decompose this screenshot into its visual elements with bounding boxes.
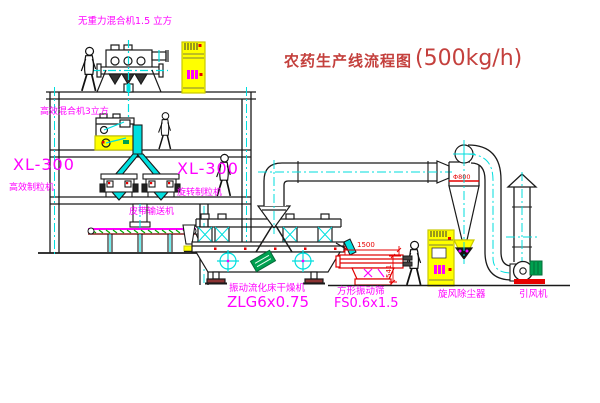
dryer-legs — [205, 272, 325, 284]
granulator-left — [100, 174, 138, 200]
label-granulator-left-name: 高效制粒机 — [9, 184, 54, 193]
spring-mounts — [198, 227, 332, 242]
worker-floor2 — [159, 113, 171, 149]
page-title: 农药生产线流程图 (500kg/h) — [284, 48, 522, 70]
label-screen-model: FS0.6x1.5 — [334, 297, 399, 310]
title-capacity: (500kg/h) — [415, 48, 522, 70]
high-efficiency-mixer — [95, 114, 135, 150]
dim-cyclone-diameter: Φ800 — [453, 174, 471, 181]
screen-feed-chute — [344, 239, 356, 255]
dim-screen-length: 1500 — [357, 242, 375, 249]
square-vibrating-screen — [336, 246, 412, 285]
worker-top-floor — [81, 47, 95, 91]
label-efficiency-mixer: 高效混合机3立方 — [40, 108, 109, 117]
exhaust-duct — [258, 160, 452, 234]
control-cabinet-top — [182, 42, 205, 93]
control-cabinet-right — [428, 230, 454, 286]
label-gravity-mixer: 无重力混合机1.5 立方 — [78, 17, 172, 27]
induced-draft-fan — [510, 261, 545, 284]
title-chinese: 农药生产线流程图 — [284, 52, 412, 70]
label-fan: 引风机 — [519, 290, 548, 300]
exhaust-stack — [506, 172, 538, 266]
process-flow-diagram: 农药生产线流程图 (500kg/h) 无重力混合机1.5 立方 高效混合机3立方… — [0, 0, 600, 403]
dim-screen-height: 541 — [386, 265, 393, 278]
label-granulator-left-model: XL-300 — [13, 157, 75, 173]
granulator-right — [142, 174, 180, 200]
label-cyclone: 旋风除尘器 — [438, 290, 486, 300]
label-granulator-mid-name: 旋转制粒机 — [177, 189, 222, 198]
label-dryer-model: ZLG6x0.75 — [227, 295, 309, 310]
label-granulator-mid-model: XL-300 — [177, 161, 239, 177]
label-belt-conveyor: 皮带输送机 — [129, 208, 174, 217]
